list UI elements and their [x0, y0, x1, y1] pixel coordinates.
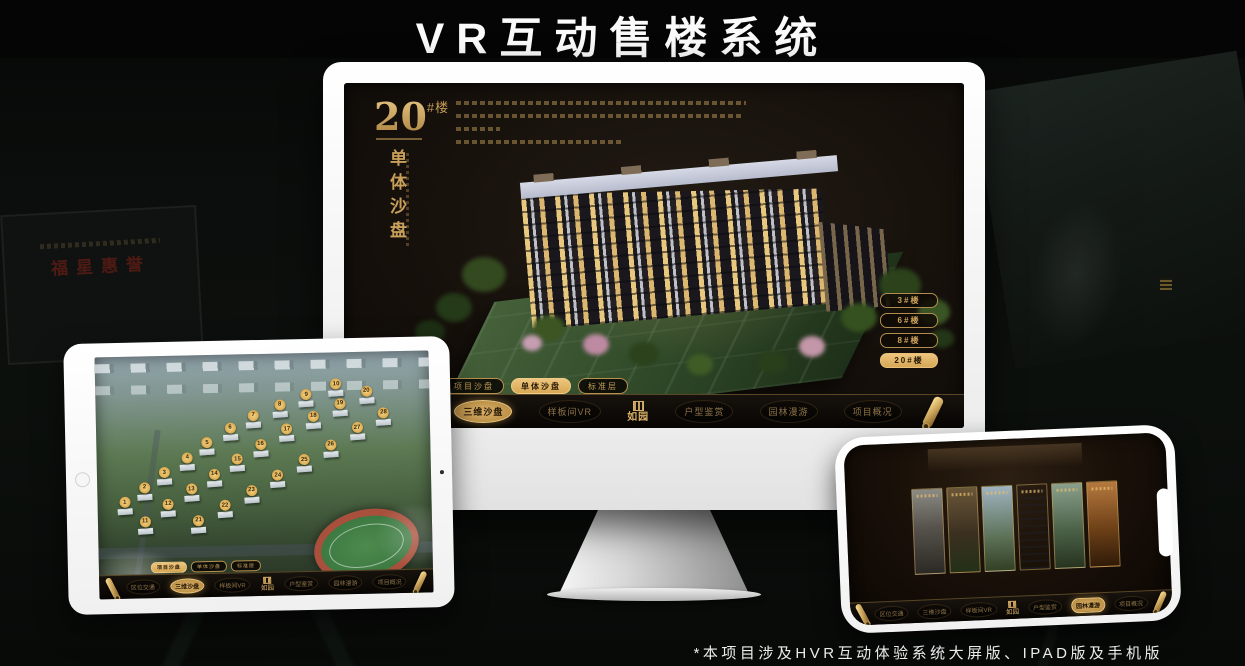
aerial-building — [246, 421, 261, 428]
aerial-building — [376, 418, 391, 425]
tablet-screen: 1234567891011121314151617181920212223242… — [94, 350, 433, 599]
scroll-handle-icon[interactable] — [921, 395, 944, 428]
aerial-building — [359, 397, 374, 404]
nav-garden-tour[interactable]: 园林漫游 — [760, 400, 818, 423]
ruyuan-logo: 如园 — [627, 401, 649, 423]
building-marker[interactable]: 15 — [232, 453, 243, 464]
nav-project-overview[interactable]: 项目概况 — [373, 574, 407, 590]
aerial-building — [306, 422, 321, 429]
tree-blob — [436, 293, 472, 322]
logo-text: 如园 — [627, 413, 649, 423]
building-marker[interactable]: 11 — [140, 516, 151, 527]
background-photo-collage — [972, 51, 1245, 369]
subtab-project-sandtable[interactable]: 项目沙盘 — [444, 378, 504, 394]
floor-button-6[interactable]: 6#楼 — [880, 313, 938, 328]
floor-button-group: 3#楼6#楼8#楼20#楼 — [880, 293, 938, 368]
scene-panel-warm-interior[interactable] — [1086, 480, 1121, 567]
description-line — [456, 114, 742, 118]
aerial-building — [223, 434, 238, 441]
building-marker[interactable]: 26 — [325, 439, 336, 450]
building-marker[interactable]: 12 — [163, 498, 174, 509]
building-marker[interactable]: 28 — [378, 407, 389, 418]
tablet-camera — [440, 470, 444, 474]
building-marker[interactable]: 8 — [274, 399, 285, 410]
monitor-base — [547, 588, 761, 601]
building-marker[interactable]: 3 — [159, 467, 170, 478]
floor-button-20[interactable]: 20#楼 — [880, 353, 938, 368]
scene-panel-building-facade[interactable] — [1016, 483, 1051, 570]
nav-model-room-vr[interactable]: 样板间VR — [960, 601, 997, 618]
building-marker[interactable]: 14 — [209, 468, 220, 479]
subtab-single-sandtable[interactable]: 单体沙盘 — [191, 561, 227, 573]
scene-panel-row — [911, 480, 1120, 575]
seal-icon — [1008, 600, 1016, 607]
building-marker[interactable]: 21 — [193, 515, 204, 526]
aerial-building — [323, 451, 338, 458]
nav-floorplan-gallery[interactable]: 户型鉴赏 — [1028, 598, 1063, 614]
subtab-standard-floor[interactable]: 标准层 — [231, 560, 261, 572]
tree-blob — [687, 354, 713, 375]
ruyuan-logo: 如园 — [1006, 600, 1020, 615]
tree-blob — [799, 336, 825, 357]
aerial-building — [270, 481, 285, 488]
aerial-building — [191, 526, 206, 533]
aerial-building — [207, 480, 222, 487]
scroll-handle-icon[interactable] — [105, 576, 120, 598]
building-marker[interactable]: 20 — [361, 385, 372, 396]
footnote: *本项目涉及HVR互动体验系统大屏版、IPAD版及手机版 — [694, 642, 1163, 663]
description-line — [456, 140, 624, 144]
building-marker[interactable]: 5 — [201, 437, 212, 448]
monitor-stand — [559, 504, 749, 594]
nav-project-overview[interactable]: 项目概况 — [844, 400, 902, 423]
nav-3d-sandtable[interactable]: 三维沙盘 — [170, 578, 204, 594]
scene-panel-balcony-view[interactable] — [981, 485, 1016, 572]
description-line — [456, 127, 500, 131]
building-marker[interactable]: 2 — [139, 482, 150, 493]
nav-garden-tour[interactable]: 园林漫游 — [1071, 597, 1106, 613]
aerial-city-row — [95, 358, 429, 374]
ruyuan-logo: 如园 — [261, 577, 274, 592]
nav-location-transport[interactable]: 区位交通 — [874, 605, 909, 621]
tree-blob — [522, 335, 542, 351]
background-logo-chip — [1160, 278, 1172, 290]
building-marker[interactable]: 24 — [272, 469, 283, 480]
floor-button-8[interactable]: 8#楼 — [880, 333, 938, 348]
description-line — [456, 101, 746, 105]
building-marker[interactable]: 7 — [248, 409, 259, 420]
aerial-building — [200, 449, 215, 456]
building-marker[interactable]: 22 — [219, 500, 230, 511]
courtyard-structure — [927, 443, 1082, 471]
aerial-building — [279, 435, 294, 442]
subtab-project-sandtable[interactable]: 项目沙盘 — [151, 562, 187, 574]
tree-blob — [462, 257, 506, 292]
building-headline: 20#楼 — [374, 97, 449, 146]
building-marker[interactable]: 4 — [182, 452, 193, 463]
aerial-building — [297, 466, 312, 473]
scene-panel-courtyard-mono[interactable] — [911, 488, 946, 575]
aerial-building — [117, 508, 132, 515]
building-number-suffix: #楼 — [427, 100, 449, 115]
aerial-building — [180, 464, 195, 471]
monitor-subtabs: 项目沙盘单体沙盘标准层 — [444, 378, 628, 394]
page-title: VR互动售楼系统 — [0, 4, 1245, 66]
scroll-handle-icon[interactable] — [413, 570, 428, 592]
aerial-building — [157, 479, 172, 486]
nav-model-room-vr[interactable]: 样板间VR — [539, 400, 602, 423]
aerial-building-markers: 1234567891011121314151617181920212223242… — [94, 350, 428, 357]
nav-floorplan-gallery[interactable]: 户型鉴赏 — [284, 576, 318, 592]
aerial-building — [332, 410, 347, 417]
building-marker[interactable]: 27 — [351, 422, 362, 433]
seal-icon — [633, 401, 644, 411]
tablet-subtabs: 项目沙盘单体沙盘标准层 — [151, 560, 261, 573]
building-marker[interactable]: 13 — [186, 483, 197, 494]
scene-panel-living-room[interactable] — [946, 486, 981, 573]
logo-text: 如园 — [261, 585, 274, 592]
tree-blob — [629, 342, 659, 366]
tablet-device: 1234567891011121314151617181920212223242… — [63, 336, 455, 615]
nav-location-transport[interactable]: 区位交通 — [126, 579, 160, 595]
tree-blob — [583, 334, 609, 355]
building-marker[interactable]: 9 — [301, 389, 312, 400]
phone-notch — [1156, 488, 1173, 557]
scroll-handle-icon[interactable] — [855, 603, 871, 625]
aerial-building — [230, 465, 245, 472]
aerial-building — [253, 450, 268, 457]
page: 福星惠誉 VR互动售楼系统 20#楼 单体沙盘 — [0, 0, 1245, 666]
building-marker[interactable]: 16 — [255, 438, 266, 449]
building-marker[interactable]: 1 — [119, 497, 130, 508]
building-marker[interactable]: 23 — [246, 485, 257, 496]
aerial-building — [329, 390, 344, 397]
nav-3d-sandtable[interactable]: 三维沙盘 — [454, 400, 512, 423]
nav-3d-sandtable[interactable]: 三维沙盘 — [917, 603, 952, 619]
building-marker[interactable]: 25 — [299, 454, 310, 465]
tree-blob — [841, 303, 877, 332]
building-marker[interactable]: 6 — [224, 422, 235, 433]
floor-button-3[interactable]: 3#楼 — [880, 293, 938, 308]
phone-navbar: 区位交通三维沙盘样板间VR如园户型鉴赏园林漫游项目概况 — [850, 589, 1173, 625]
building-marker[interactable]: 18 — [308, 411, 319, 422]
building-marker[interactable]: 17 — [281, 423, 292, 434]
aerial-building — [138, 527, 153, 534]
subtab-single-sandtable[interactable]: 单体沙盘 — [511, 378, 571, 394]
building-number: 20 — [374, 94, 427, 139]
plaque-decoration — [40, 238, 160, 249]
headline-subtitle-caption — [406, 153, 409, 249]
aerial-building — [244, 496, 259, 503]
aerial-building — [272, 411, 287, 418]
scene-panel-garden-path[interactable] — [1051, 482, 1086, 569]
aerial-building — [350, 433, 365, 440]
aerial-building — [161, 510, 176, 517]
nav-floorplan-gallery[interactable]: 户型鉴赏 — [675, 400, 733, 423]
background-plaque: 福星惠誉 — [2, 207, 201, 363]
nav-garden-tour[interactable]: 园林漫游 — [328, 575, 362, 591]
aerial-building — [137, 494, 152, 501]
plaque-text: 福星惠誉 — [7, 247, 194, 282]
subtab-standard-floor[interactable]: 标准层 — [578, 378, 628, 394]
tablet-home-button[interactable] — [75, 472, 90, 487]
tree-blob — [757, 350, 787, 374]
nav-project-overview[interactable]: 项目概况 — [1114, 595, 1149, 611]
logo-text: 如园 — [1006, 608, 1019, 615]
aerial-building — [184, 495, 199, 502]
scroll-handle-icon[interactable] — [1153, 590, 1167, 613]
aerial-building — [299, 401, 314, 408]
nav-model-room-vr[interactable]: 样板间VR — [214, 577, 251, 593]
phone-device: 区位交通三维沙盘样板间VR如园户型鉴赏园林漫游项目概况 — [834, 424, 1182, 634]
phone-screen: 区位交通三维沙盘样板间VR如园户型鉴赏园林漫游项目概况 — [843, 432, 1172, 625]
aerial-building — [218, 511, 233, 518]
description-paragraph — [456, 101, 746, 153]
aerial-city-row — [95, 379, 429, 395]
building-marker[interactable]: 19 — [334, 398, 345, 409]
